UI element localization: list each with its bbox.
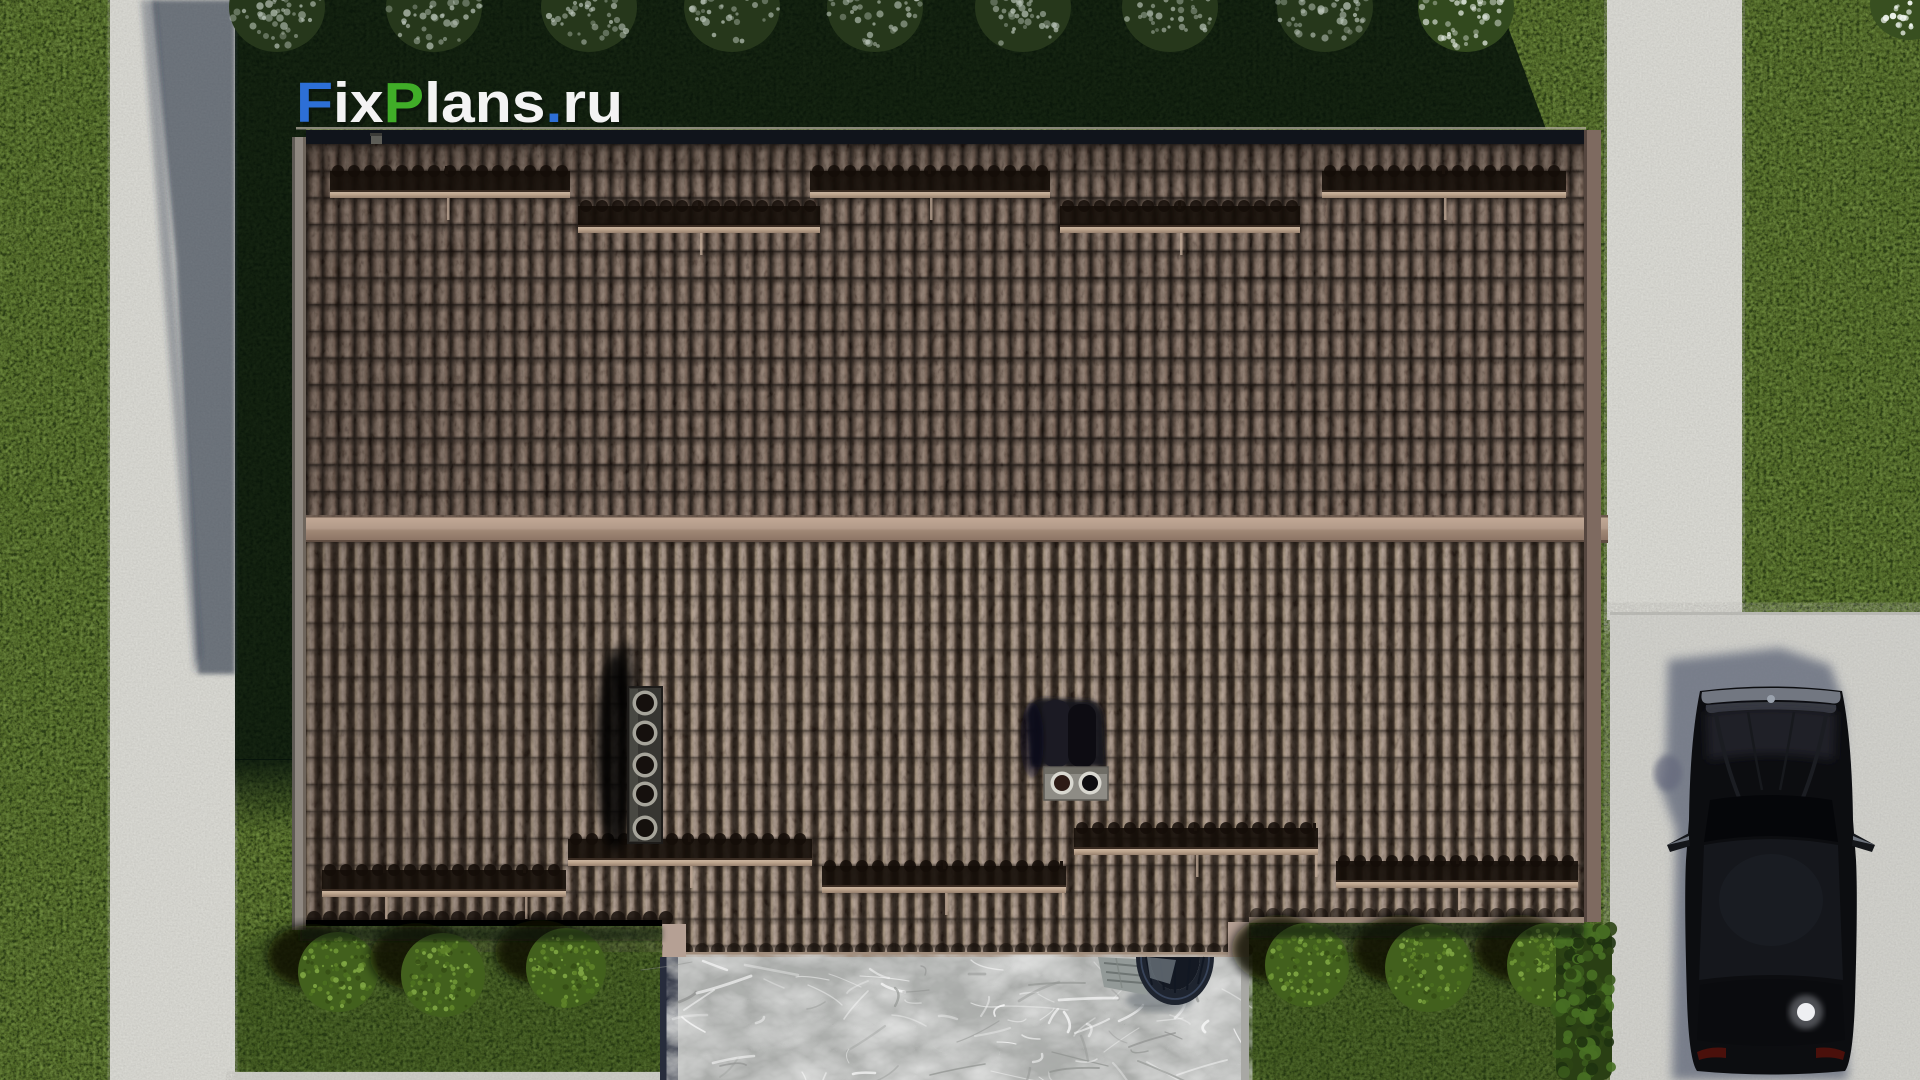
svg-text:FixPlans.ru: FixPlans.ru — [296, 71, 623, 135]
